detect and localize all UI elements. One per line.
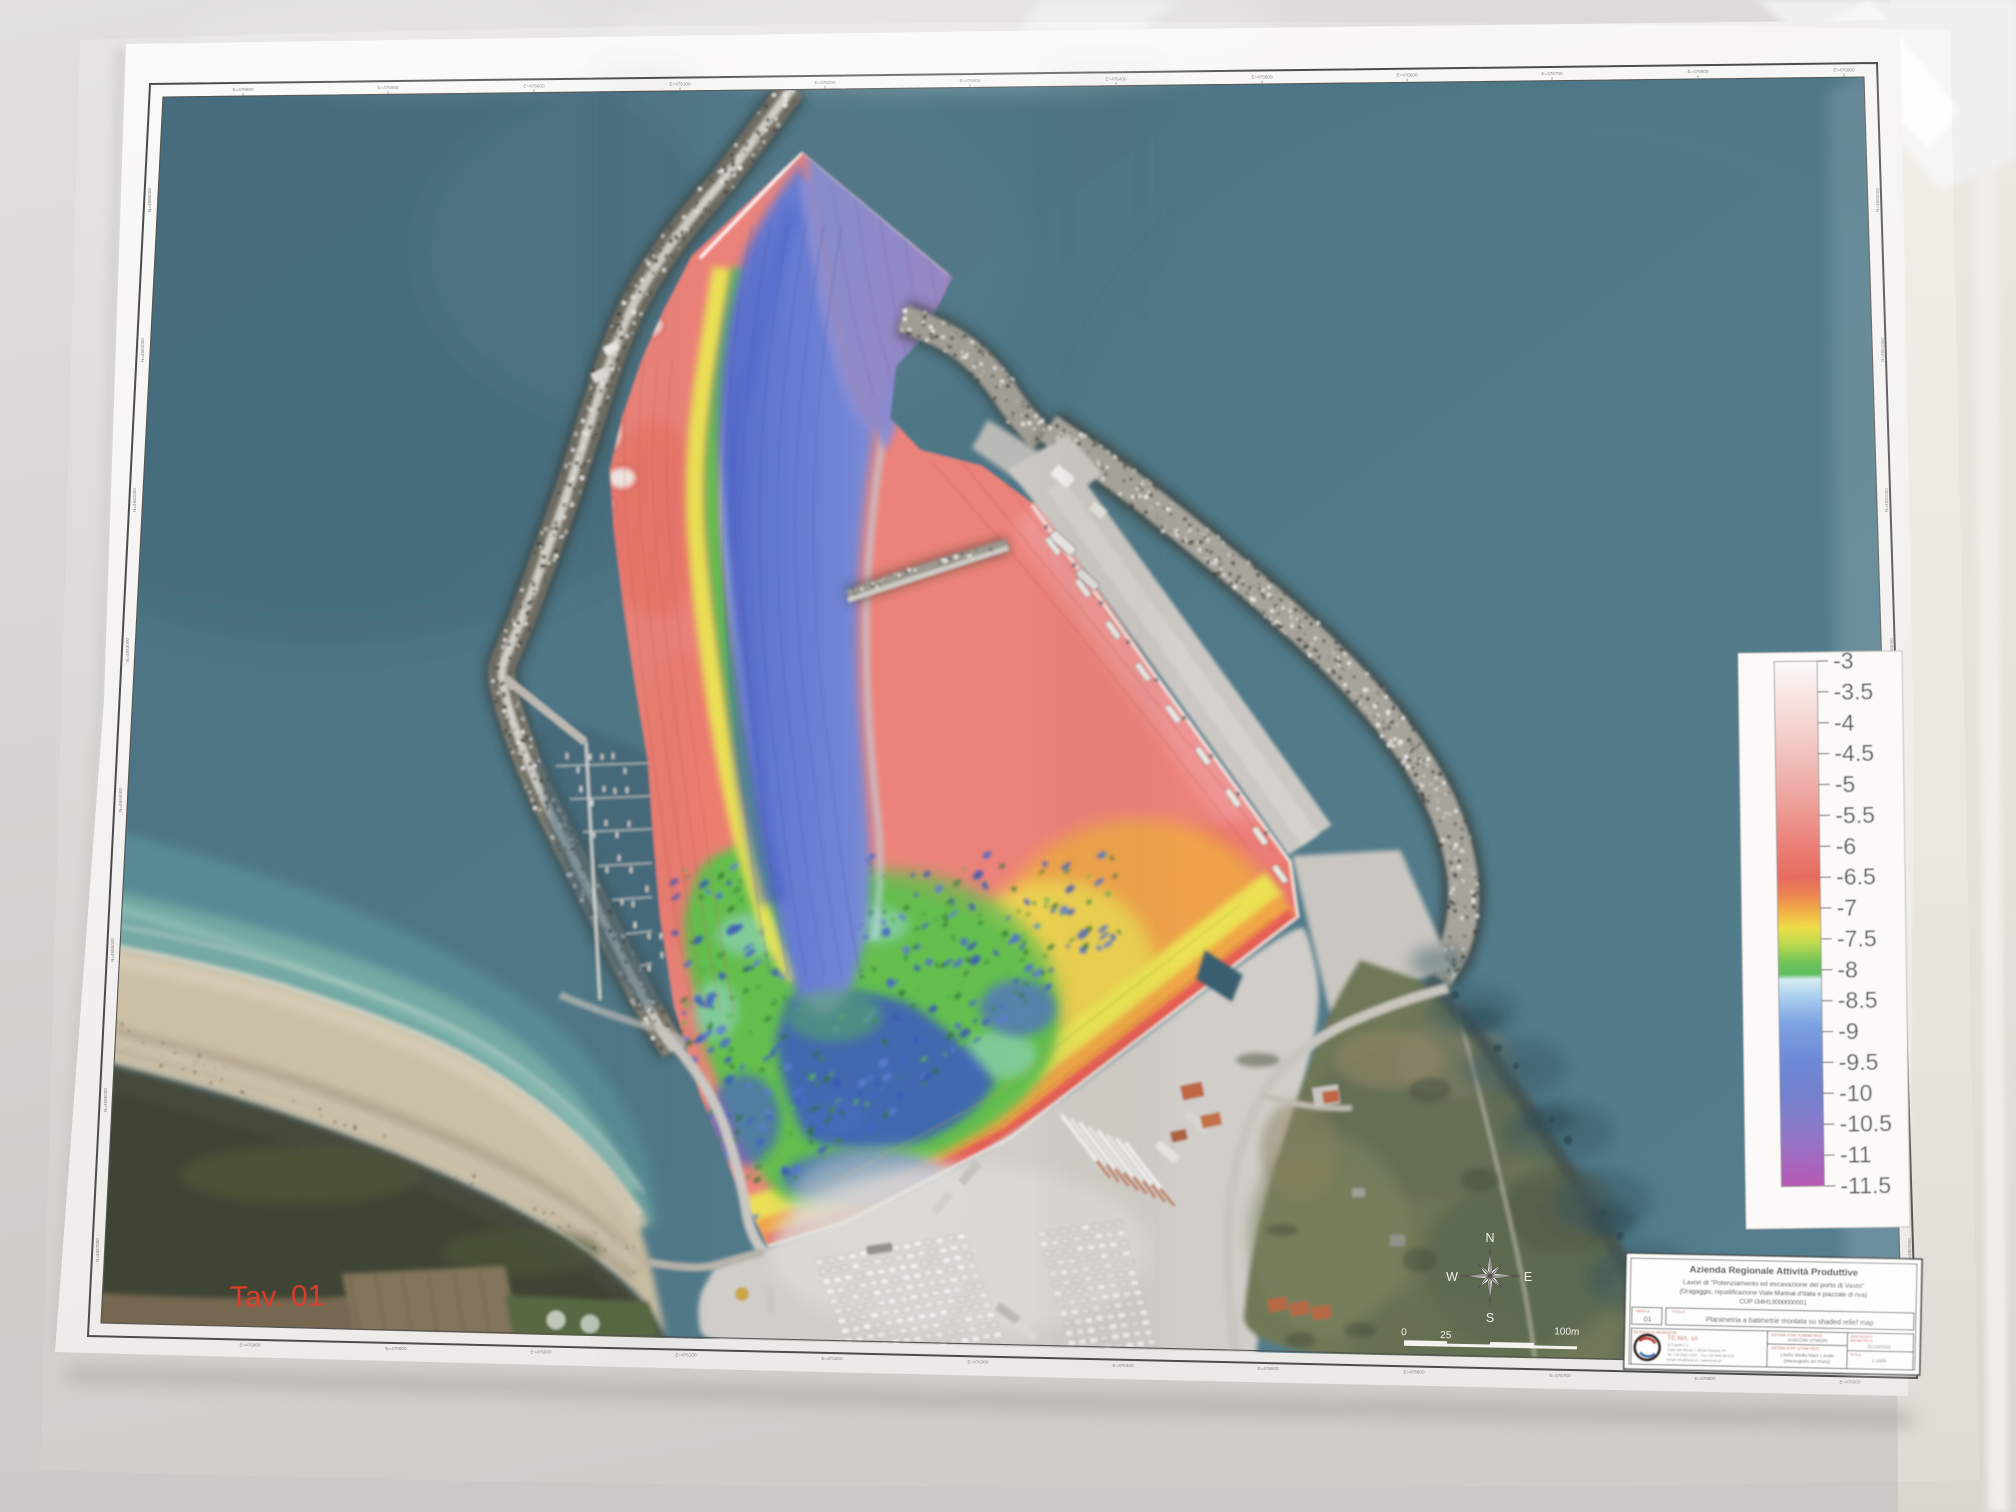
svg-text:0: 0	[1401, 1327, 1407, 1338]
svg-text:E=476700: E=476700	[1549, 1373, 1571, 1378]
svg-text:E=475800: E=475800	[239, 1343, 261, 1348]
svg-text:N=4680000: N=4680000	[147, 188, 152, 212]
svg-text:Tav. 01: Tav. 01	[230, 1279, 325, 1314]
svg-text:N=4686000: N=4686000	[103, 1088, 108, 1112]
svg-text:E=475900: E=475900	[385, 1346, 407, 1351]
svg-text:S: S	[1486, 1311, 1494, 1325]
svg-text:TE.MA. srl: TE.MA. srl	[1667, 1335, 1698, 1343]
svg-text:E=476600: E=476600	[1403, 1369, 1425, 1374]
svg-text:E=476300: E=476300	[967, 1359, 989, 1364]
svg-text:E: E	[1524, 1270, 1532, 1284]
svg-text:N=4681000: N=4681000	[140, 338, 145, 362]
svg-text:E=476700: E=476700	[1541, 71, 1563, 76]
svg-text:E=475800: E=475800	[232, 87, 254, 92]
svg-text:(Mareografo del Porto): (Mareografo del Porto)	[1784, 1358, 1831, 1364]
svg-text:100m: 100m	[1554, 1326, 1579, 1338]
svg-text:01: 01	[1644, 1316, 1652, 1323]
svg-text:N=4685000: N=4685000	[110, 938, 115, 962]
svg-text:N=4682000: N=4682000	[132, 488, 137, 512]
svg-text:E=476000: E=476000	[530, 1349, 552, 1354]
svg-text:E=476600: E=476600	[1396, 73, 1418, 78]
svg-text:E=476800: E=476800	[1687, 69, 1709, 74]
svg-text:E=476500: E=476500	[1257, 1366, 1279, 1371]
svg-text:N=4684000: N=4684000	[118, 788, 123, 812]
svg-text:VASCONI UTM33N: VASCONI UTM33N	[1787, 1337, 1827, 1343]
svg-text:N: N	[1485, 1231, 1494, 1245]
svg-text:E=476500: E=476500	[1251, 75, 1273, 80]
svg-text:TITOLO: TITOLO	[1672, 1310, 1685, 1314]
svg-text:W: W	[1446, 1270, 1458, 1284]
svg-text:E=476400: E=476400	[1112, 1363, 1134, 1368]
svg-text:TAVOLA: TAVOLA	[1636, 1309, 1650, 1313]
svg-text:E=476200: E=476200	[821, 1356, 843, 1361]
svg-text:E=476900: E=476900	[1833, 67, 1855, 72]
svg-text:N=4687000: N=4687000	[95, 1238, 100, 1262]
svg-text:CUP I34H13000000001: CUP I34H13000000001	[1739, 1298, 1807, 1306]
svg-text:25: 25	[1440, 1330, 1452, 1341]
svg-text:E=476800: E=476800	[1694, 1376, 1716, 1381]
svg-text:N=4683000: N=4683000	[125, 638, 130, 662]
svg-text:Di Cupelli e C.: Di Cupelli e C.	[1667, 1343, 1689, 1347]
